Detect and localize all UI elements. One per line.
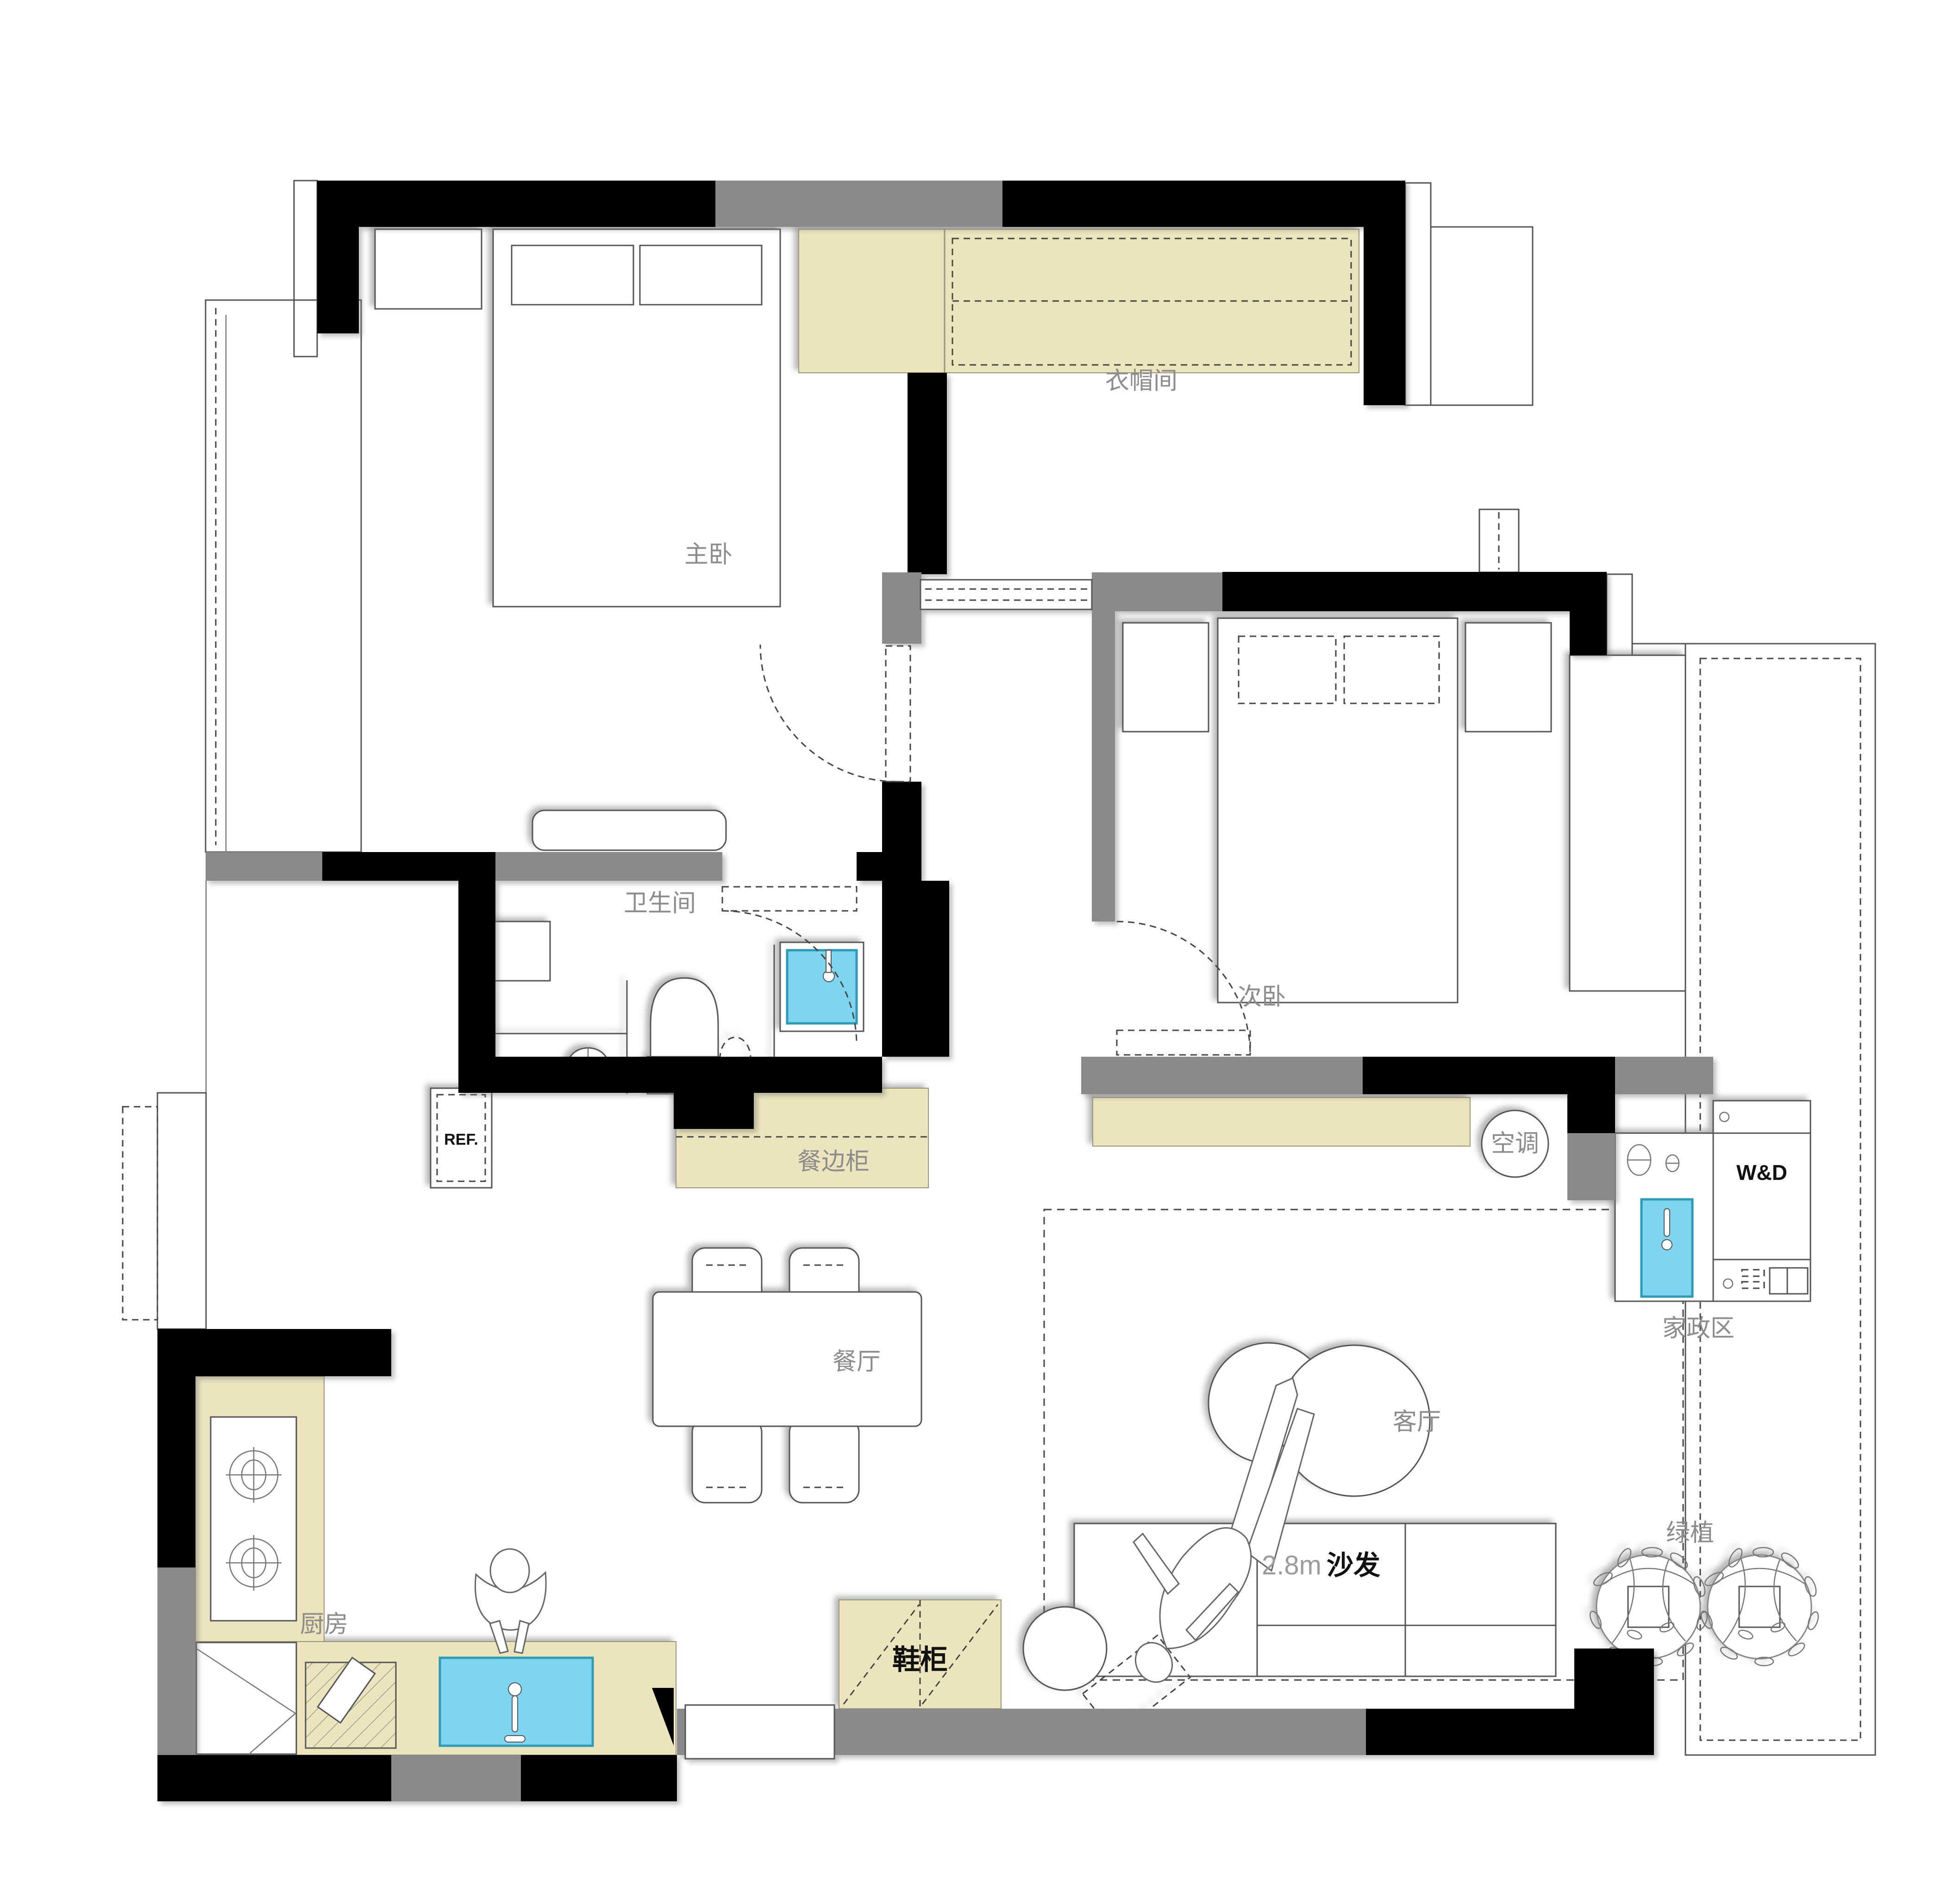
wall xyxy=(882,881,949,1057)
wall xyxy=(1002,181,1405,227)
corner-cabinet xyxy=(196,1643,296,1754)
washing-machine xyxy=(491,922,550,981)
wall xyxy=(1615,1057,1713,1094)
window-top-left xyxy=(294,181,317,357)
wall xyxy=(317,181,359,333)
wall xyxy=(157,1329,195,1567)
wall xyxy=(1363,1057,1567,1094)
closet-wardrobe xyxy=(799,229,1359,373)
label-second-bedroom: 次卧 xyxy=(1238,984,1286,1010)
wall-window-band xyxy=(715,181,1002,227)
nightstand xyxy=(1465,623,1551,732)
label-master-bedroom: 主卧 xyxy=(684,541,733,568)
floor-plan: 主卧 衣帽间 卫生间 次卧 餐边柜 空调 W&D 家政区 餐厅 客厅 厨房 鞋柜… xyxy=(0,0,1960,1887)
plant-right xyxy=(1699,1547,1820,1666)
label-dining-room: 餐厅 xyxy=(833,1348,881,1375)
entry-opening xyxy=(685,1705,834,1759)
window-second-bedroom xyxy=(1607,574,1632,655)
label-bathroom: 卫生间 xyxy=(624,890,696,917)
wall xyxy=(1366,1709,1654,1755)
kitchen-sink xyxy=(440,1658,593,1746)
side-table xyxy=(1023,1607,1107,1690)
wall xyxy=(1567,1133,1615,1200)
exterior-step xyxy=(1632,574,1685,644)
person-kitchen xyxy=(475,1549,546,1653)
tv-cabinet xyxy=(1093,1097,1470,1146)
wall xyxy=(521,1755,677,1801)
kitchen-counter xyxy=(195,1376,676,1755)
label-laundry-area: 家政区 xyxy=(1662,1315,1735,1342)
wall xyxy=(674,1057,754,1129)
bench xyxy=(532,810,726,850)
wall xyxy=(1574,1649,1654,1709)
shower-tray xyxy=(787,950,857,1023)
wall-window-band xyxy=(391,1755,521,1801)
stove xyxy=(211,1417,296,1621)
wall xyxy=(206,852,322,881)
label-air-conditioner: 空调 xyxy=(1491,1130,1539,1157)
label-sofa: 沙发 xyxy=(1327,1550,1380,1580)
label-walkin-closet: 衣帽间 xyxy=(1105,368,1177,395)
wall xyxy=(882,782,921,881)
pocket-door-track xyxy=(921,580,1092,609)
second-bed xyxy=(1218,618,1458,1003)
chair xyxy=(692,1419,762,1503)
toilet xyxy=(651,978,718,1057)
pillow xyxy=(1344,636,1439,703)
wall xyxy=(1222,572,1607,611)
label-kitchen: 厨房 xyxy=(300,1611,348,1638)
wall xyxy=(1081,1057,1363,1094)
wall xyxy=(1364,227,1405,405)
wall xyxy=(1092,572,1222,611)
bay-window-master xyxy=(206,300,361,852)
wall xyxy=(1092,611,1115,922)
wall xyxy=(317,181,715,227)
wall xyxy=(458,881,495,1057)
chair xyxy=(789,1419,859,1503)
wall xyxy=(908,373,947,574)
dining-table xyxy=(653,1292,921,1426)
nightstand xyxy=(1123,623,1209,732)
master-door xyxy=(760,645,910,782)
label-washer-dryer: W&D xyxy=(1736,1160,1787,1185)
label-living-room: 客厅 xyxy=(1393,1409,1441,1436)
wall xyxy=(1567,1057,1615,1133)
wall xyxy=(1570,611,1607,655)
pillow xyxy=(640,245,762,305)
window-closet-right xyxy=(1405,183,1431,405)
wall xyxy=(495,852,722,881)
pillow xyxy=(1239,636,1336,703)
label-sideboard: 餐边柜 xyxy=(797,1148,870,1175)
dining-set xyxy=(653,1248,921,1503)
laundry-cabinet xyxy=(1615,1133,1713,1301)
duct xyxy=(1479,509,1519,572)
nightstand xyxy=(375,229,482,309)
label-sofa-size: 2.8m xyxy=(1262,1550,1321,1580)
wall xyxy=(882,572,921,644)
wall xyxy=(754,1057,882,1093)
left-shaft xyxy=(123,881,206,1329)
label-plants: 绿植 xyxy=(1666,1520,1714,1547)
wall xyxy=(322,852,495,881)
wall xyxy=(857,852,882,881)
exterior-ledge xyxy=(1431,227,1533,405)
label-shoe-cabinet: 鞋柜 xyxy=(892,1644,948,1675)
wall xyxy=(157,1755,391,1801)
wall xyxy=(458,1057,674,1093)
plant-left xyxy=(1588,1547,1709,1666)
label-fridge: REF. xyxy=(444,1131,478,1148)
washer-dryer-unit xyxy=(1713,1101,1810,1301)
pillow xyxy=(512,245,633,305)
master-bed xyxy=(493,229,780,607)
wall-window-band xyxy=(157,1567,195,1755)
cutting-board xyxy=(306,1658,396,1748)
wardrobe-second-bedroom xyxy=(1570,655,1685,991)
